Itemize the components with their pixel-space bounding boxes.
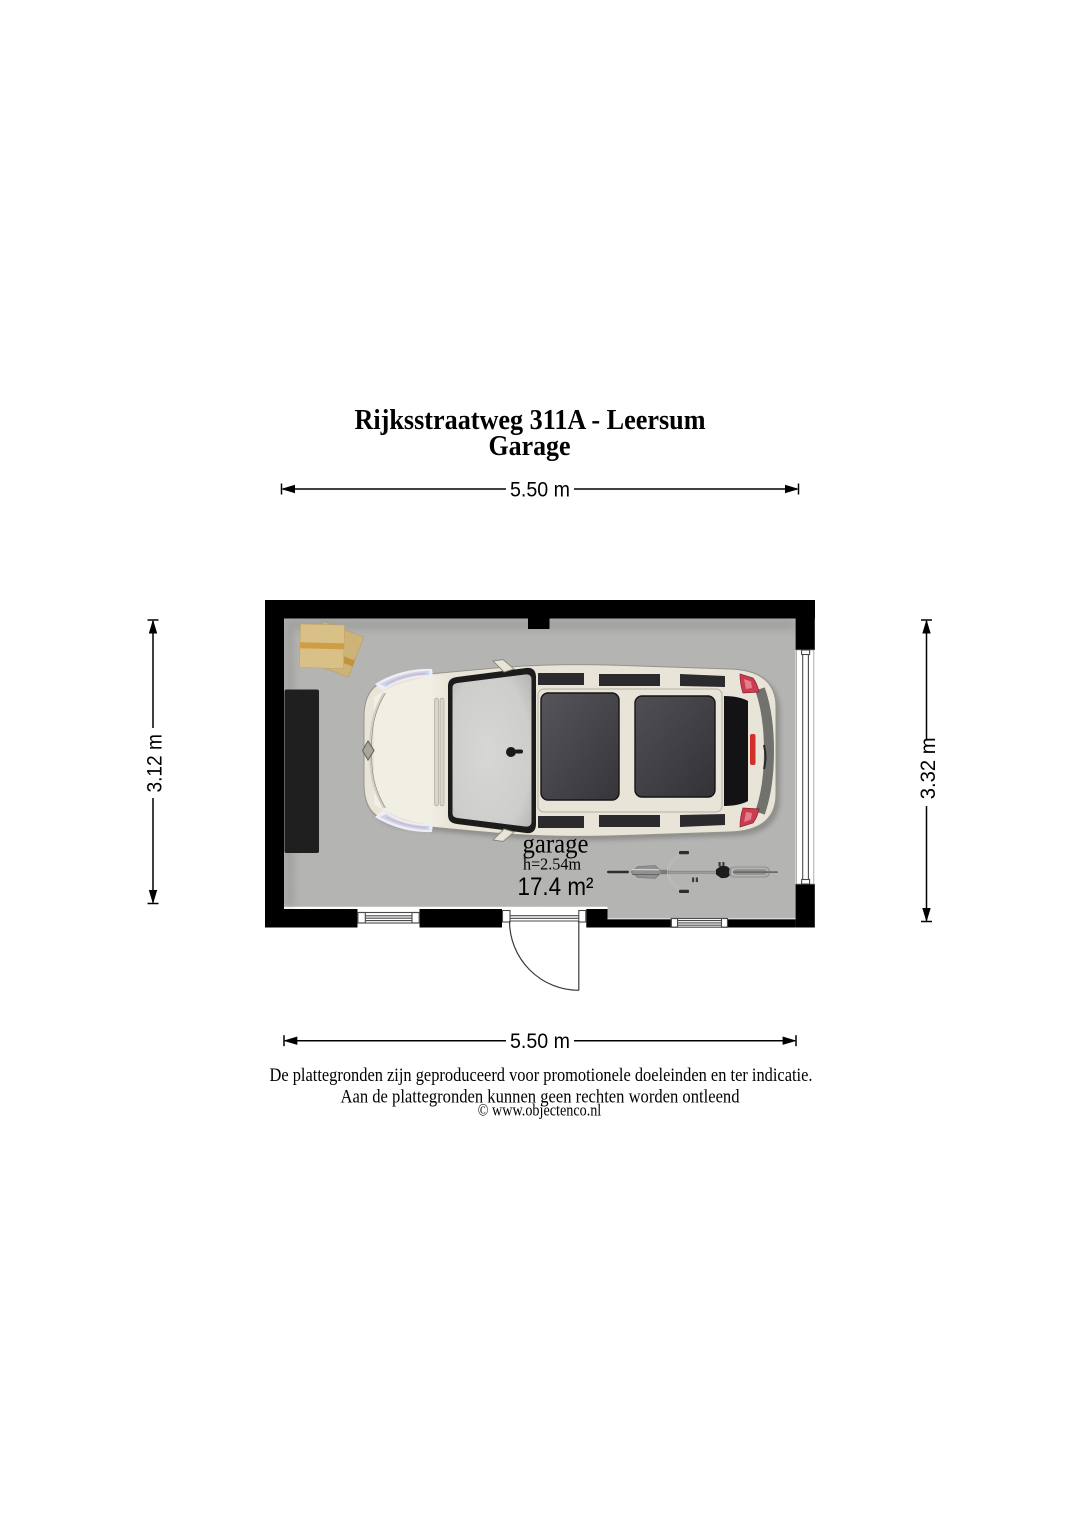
svg-text:3.12 m: 3.12 m [144, 734, 167, 793]
svg-text:5.50 m: 5.50 m [510, 1030, 570, 1053]
svg-text:© www.objectenco.nl: © www.objectenco.nl [478, 1101, 602, 1120]
svg-text:De plattegronden zijn geproduc: De plattegronden zijn geproduceerd voor … [270, 1066, 813, 1086]
svg-text:h=2.54m: h=2.54m [523, 855, 581, 874]
svg-text:5.50 m: 5.50 m [510, 479, 570, 502]
svg-text:3.32 m: 3.32 m [917, 737, 940, 799]
svg-text:17.4 m²: 17.4 m² [518, 873, 594, 901]
svg-text:Garage: Garage [489, 430, 571, 462]
